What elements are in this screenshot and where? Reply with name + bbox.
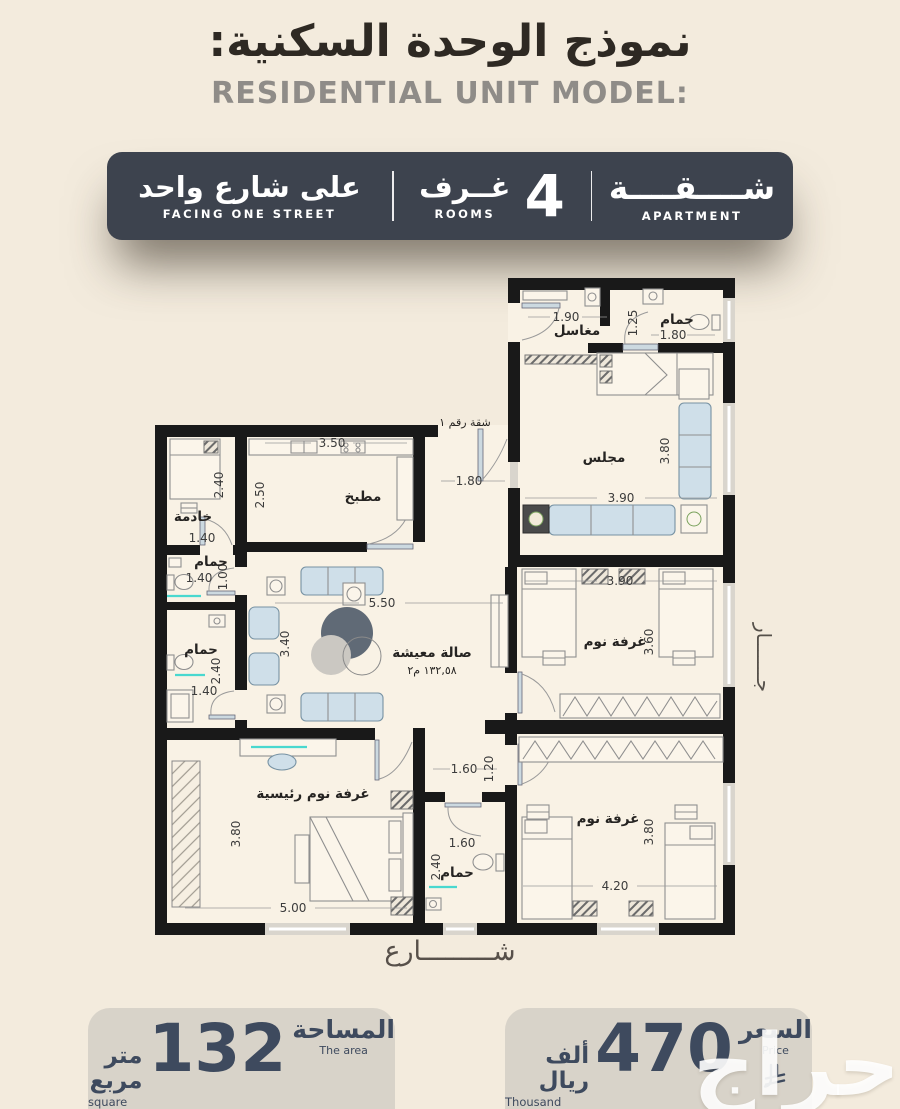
room-label-maid-bath: حمام [194,554,228,570]
dim-label: 5.50 [369,596,396,610]
apartment-number-label: شقة رقم ١ [439,416,491,429]
neighbor-side-label: جـــــــار [752,492,776,692]
dim-label: 1.25 [626,310,640,337]
page-title-arabic: نموذج الوحدة السكنية: [0,16,900,67]
room-label-majlis: مجلس [583,450,626,466]
dim-label: 1.90 [553,310,580,324]
banner-rooms-cell: غــرف ROOMS 4 [394,167,591,225]
dim-label: 4.20 [602,879,629,893]
street-facing-arabic: على شارع واحد [138,171,361,204]
apartment-english: APARTMENT [642,209,743,223]
dim-label: 2.40 [209,658,223,685]
dim-label: 1.20 [482,756,496,783]
area-title-arabic: المساحة [292,1016,395,1044]
dim-label: 2.40 [212,472,226,499]
room-label-bedroom-bottom: غرفة نوم [577,811,640,827]
banner-street-cell: على شارع واحد FACING ONE STREET [107,171,392,221]
banner-apartment-cell: شــــقــــة APARTMENT [592,169,792,224]
real-estate-flyer: نموذج الوحدة السكنية: RESIDENTIAL UNIT M… [0,0,900,1109]
room-label-guest-bath: حمام [184,642,218,658]
dim-label: 3.80 [658,438,672,465]
area-title: المساحة The area [292,1016,395,1109]
dim-label: 3.90 [608,491,635,505]
price-unit-arabic: ألف ريال [505,1044,589,1095]
room-label-living: صالة معيشة [392,645,471,661]
rooms-count: 4 [525,167,565,225]
area-unit-english: square meter [88,1095,142,1109]
room-label-bath-mid: حمام [440,865,474,881]
rooms-arabic: غــرف [419,171,510,204]
room-label-maid: خادمة [174,509,212,525]
street-facing-english: FACING ONE STREET [163,207,337,221]
area-unit: متر مربع square meter [88,1044,142,1109]
room-label-master-bedroom: غرفة نوم رئيسية [256,786,369,802]
living-area-value: ١٣٢,٥٨ م٢ [407,664,456,677]
room-label-kitchen: مطبخ [345,489,382,505]
dim-label: 1.60 [449,836,476,850]
floor-plan-drawing: 1.90 1.25 1.80 3.80 3.90 2.40 1.40 1.40 … [145,265,785,965]
area-value: 132 [148,1016,286,1109]
dim-label: 1.40 [186,571,213,585]
page-title-english: RESIDENTIAL UNIT MODEL: [0,76,900,111]
street-side-label: شـــــــــارع [0,936,900,967]
dim-label: 3.80 [229,821,243,848]
dim-label: 5.00 [280,901,307,915]
dim-label: 2.50 [253,482,267,509]
dim-label: 3.90 [607,574,634,588]
area-unit-arabic: متر مربع [88,1044,142,1095]
area-title-english: The area [319,1044,368,1057]
price-unit: ألف ريال Thousand Riyals [505,1044,589,1109]
dim-label: 1.80 [456,474,483,488]
price-unit-english: Thousand Riyals [505,1095,589,1109]
apartment-arabic: شــــقــــة [609,169,775,207]
dim-label: 1.40 [191,684,218,698]
spec-banner: على شارع واحد FACING ONE STREET غــرف RO… [107,152,793,240]
dim-label: 1.80 [660,328,687,342]
room-label-washbasins: مغاسل [554,323,600,339]
haraj-watermark: حراج [693,1016,900,1109]
rooms-english: ROOMS [434,207,495,221]
area-badge: متر مربع square meter 132 المساحة The ar… [88,1008,395,1109]
dim-label: 1.40 [189,531,216,545]
dim-label: 3.80 [642,819,656,846]
dim-label: 3.50 [319,436,346,450]
dim-label: 3.40 [278,631,292,658]
room-label-bedroom-mid: غرفة نوم [584,634,647,650]
dim-label: 1.60 [451,762,478,776]
room-label-bath-top: حمام [660,312,694,328]
